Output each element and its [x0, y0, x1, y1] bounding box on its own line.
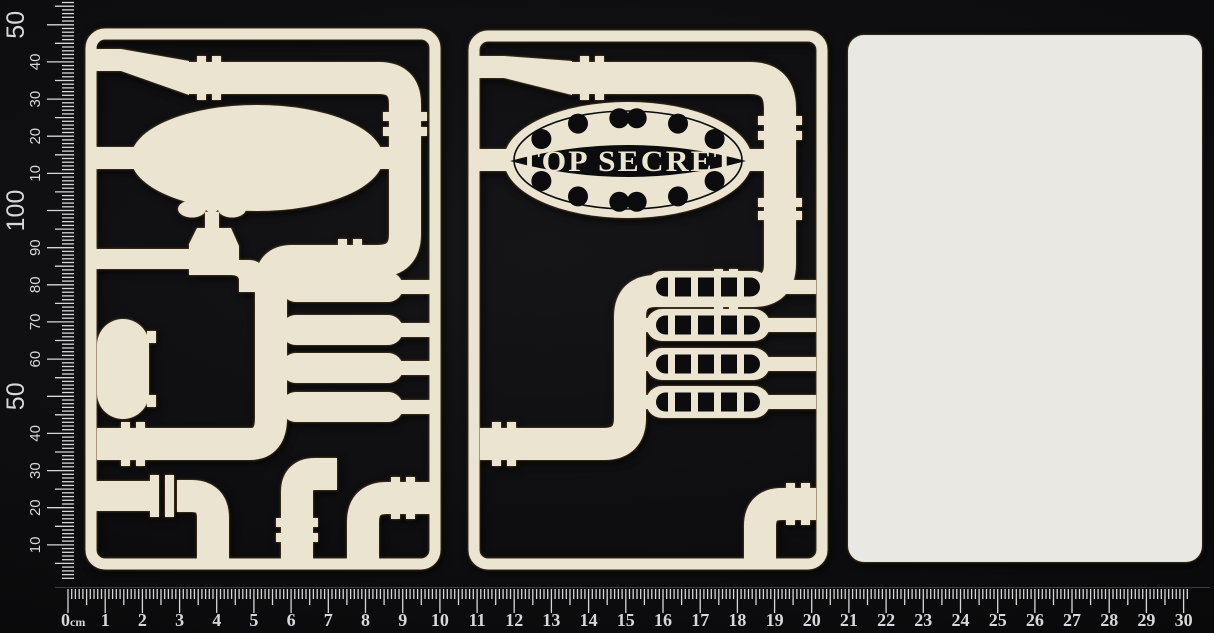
horizontal-ruler-label: 28	[1100, 610, 1118, 630]
vertical-ruler-label: 90	[27, 239, 44, 256]
horizontal-ruler-label: 22	[877, 610, 895, 630]
horizontal-ruler-label: 14	[580, 610, 598, 630]
horizontal-ruler-label: 26	[1026, 610, 1044, 630]
horizontal-ruler-label: 27	[1063, 610, 1081, 630]
top-secret-panel: TOP SECRET	[468, 30, 828, 570]
horizontal-ruler-label: 25	[989, 610, 1007, 630]
vertical-ruler-label: 70	[27, 314, 44, 331]
top-secret-banner: TOP SECRET	[479, 102, 774, 218]
horizontal-ruler-label: 20	[803, 610, 821, 630]
pipes-panel-a	[85, 28, 441, 570]
tapered-intake-pipe	[478, 56, 572, 95]
vertical-ruler-label: 50	[2, 382, 30, 410]
vertical-ruler-label: 10	[27, 537, 44, 554]
vertical-ruler-label: 30	[27, 91, 44, 108]
vertical-ruler-label: 50	[2, 11, 30, 39]
horizontal-ruler-label: 29	[1137, 610, 1155, 630]
vertical-ruler-label: 80	[27, 276, 44, 293]
water-tap	[96, 199, 263, 292]
horizontal-ruler-label: 15	[617, 610, 635, 630]
horizontal-ruler-label: 6	[287, 610, 296, 630]
product-photo: 1020304050607080901001020304050 0cm12345…	[0, 0, 1214, 633]
tapered-intake-pipe	[95, 49, 189, 95]
bottom-pipe-fittings	[96, 474, 430, 559]
vertical-ruler-label: 40	[27, 425, 44, 442]
oblong-pipe-section	[97, 319, 156, 419]
vertical-ruler-label: 100	[2, 190, 30, 232]
horizontal-ruler: 0cm1234567891011121314151617181920212223…	[0, 585, 1214, 633]
horizontal-ruler-label: 23	[914, 610, 932, 630]
horizontal-ruler-label: 7	[324, 610, 333, 630]
horizontal-ruler-label: 10	[431, 610, 449, 630]
corner-elbow-pipe	[760, 483, 816, 559]
horizontal-ruler-zero-label: 0cm	[61, 610, 85, 630]
vertical-ruler-label: 30	[27, 462, 44, 479]
horizontal-ruler-label: 24	[952, 610, 970, 630]
horizontal-ruler-label: 1	[101, 610, 110, 630]
banner-text: TOP SECRET	[519, 145, 737, 178]
vertical-ruler: 1020304050607080901001020304050	[0, 0, 86, 592]
vertical-ruler-label: 60	[27, 351, 44, 368]
horizontal-ruler-label: 2	[138, 610, 147, 630]
horizontal-ruler-label: 30	[1175, 610, 1193, 630]
horizontal-ruler-label: 13	[542, 610, 560, 630]
vertical-ruler-label: 20	[27, 499, 44, 516]
horizontal-ruler-label: 5	[249, 610, 258, 630]
vertical-ruler-label: 20	[27, 128, 44, 145]
horizontal-ruler-label: 9	[398, 610, 407, 630]
horizontal-ruler-label: 18	[728, 610, 746, 630]
vertical-ruler-label: 40	[27, 54, 44, 71]
horizontal-ruler-label: 3	[175, 610, 184, 630]
horizontal-ruler-label: 4	[212, 610, 221, 630]
horizontal-ruler-label: 8	[361, 610, 370, 630]
tank-stub	[96, 147, 134, 169]
vertical-ruler-label: 10	[27, 165, 44, 182]
blank-panel	[845, 32, 1205, 565]
boiler-tank	[131, 105, 383, 211]
horizontal-ruler-label: 17	[691, 610, 709, 630]
horizontal-ruler-label: 19	[766, 610, 784, 630]
horizontal-ruler-label: 12	[505, 610, 523, 630]
tank-stub	[379, 147, 397, 169]
horizontal-ruler-label: 16	[654, 610, 672, 630]
horizontal-ruler-label: 21	[840, 610, 858, 630]
horizontal-ruler-label: 11	[469, 610, 486, 630]
blank-board-surface	[848, 35, 1202, 562]
